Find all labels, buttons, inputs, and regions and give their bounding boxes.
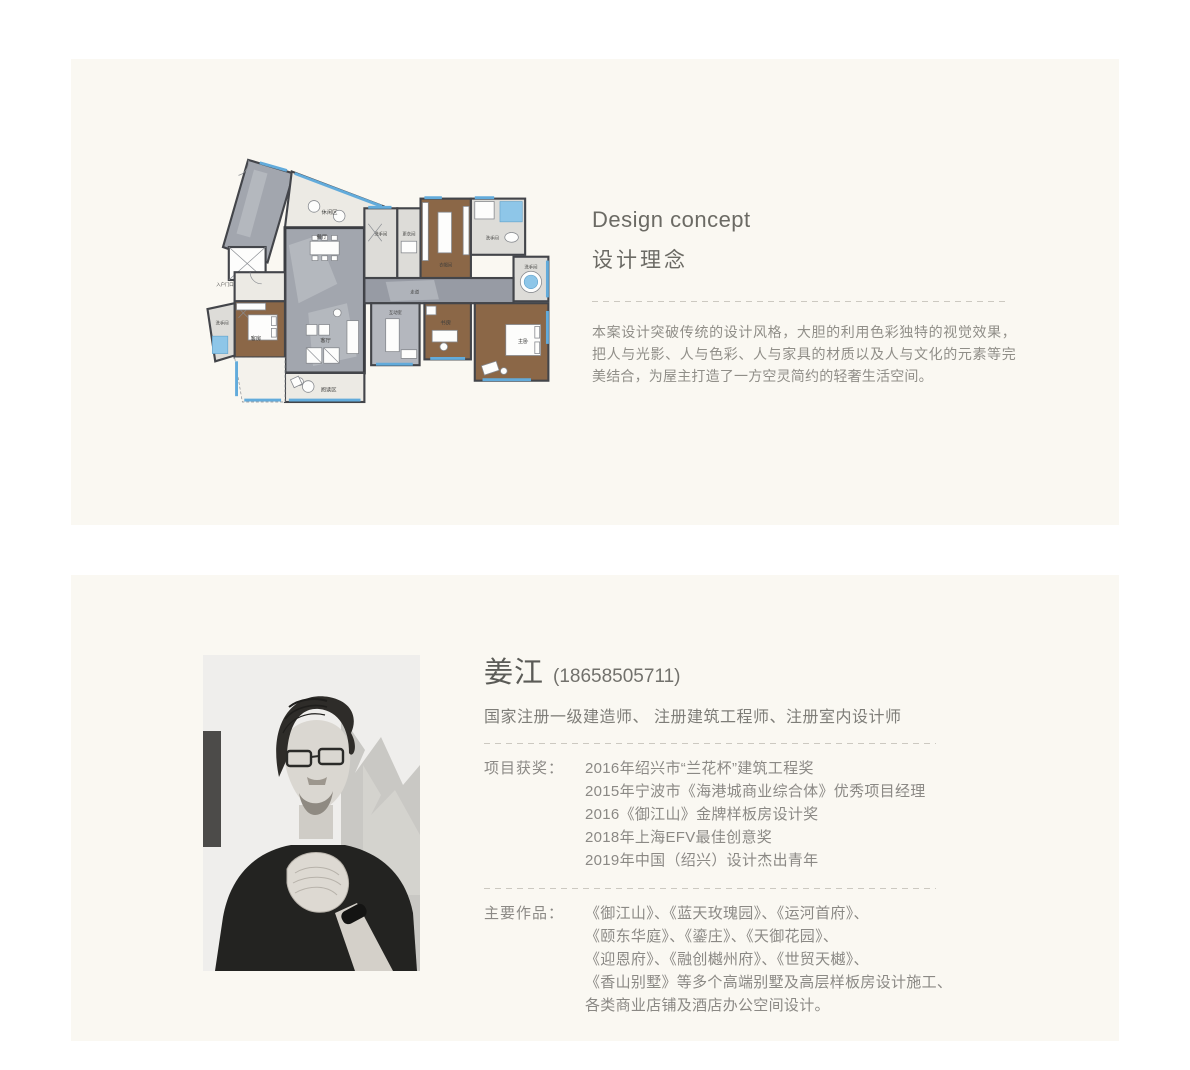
room-label: 互动室 <box>389 309 403 316</box>
room-label: 客房 <box>251 334 262 342</box>
dashed-divider <box>592 301 1006 302</box>
designer-credentials: 国家注册一级建造师、 注册建筑工程师、注册室内设计师 <box>484 703 954 727</box>
room-label: 书房 <box>440 319 451 327</box>
concept-description: 本案设计突破传统的设计风格，大胆的利用色彩独特的视觉效果，把人与光影、人与色彩、… <box>592 321 1016 387</box>
room-label: 餐厅 <box>316 232 327 240</box>
floorplan-image: 休闲区 餐厅 洗手间 更衣间 衣帽间 洗手间 洗手间 走道 入户门口 洗手间 客… <box>192 148 560 410</box>
work-item: 各类商业店铺及酒店办公空间设计。 <box>585 994 954 1017</box>
works-list: 《御江山》、《蓝天玫瑰园》、《运河首府》、 《颐东华庭》、《鎏庄》、《天御花园》… <box>585 902 954 1017</box>
works-label: 主要作品： <box>484 902 585 1017</box>
designer-portrait <box>203 655 420 971</box>
room-label: 洗手间 <box>216 320 229 327</box>
work-item: 《香山别墅》等多个高端别墅及高层样板房设计施工、 <box>585 971 954 994</box>
designer-phone: (18658505711) <box>553 666 680 688</box>
awards-section: 项目获奖： 2016年绍兴市“兰花杯”建筑工程奖 2015年宁波市《海港城商业综… <box>484 757 954 872</box>
work-item: 《迎恩府》、《融创樾州府》、《世贸天樾》、 <box>585 948 954 971</box>
work-item: 《颐东华庭》、《鎏庄》、《天御花园》、 <box>585 925 954 948</box>
awards-label: 项目获奖： <box>484 757 585 872</box>
dashed-divider <box>484 888 936 889</box>
award-item: 2016年绍兴市“兰花杯”建筑工程奖 <box>585 757 954 780</box>
room-label: 衣帽间 <box>439 261 452 268</box>
room-label: 入户门口 <box>216 281 233 288</box>
works-section: 主要作品： 《御江山》、《蓝天玫瑰园》、《运河首府》、 《颐东华庭》、《鎏庄》、… <box>484 902 954 1017</box>
award-item: 2015年宁波市《海港城商业综合体》优秀项目经理 <box>585 780 954 803</box>
room-label: 阅读区 <box>321 385 338 393</box>
profile-text-column: 姜江 (18658505711) 国家注册一级建造师、 注册建筑工程师、注册室内… <box>484 649 954 1017</box>
dashed-divider <box>484 743 936 744</box>
awards-list: 2016年绍兴市“兰花杯”建筑工程奖 2015年宁波市《海港城商业综合体》优秀项… <box>585 757 954 872</box>
room-label: 休闲区 <box>322 208 339 216</box>
room-label: 洗手间 <box>524 263 537 270</box>
award-item: 2016《御江山》金牌样板房设计奖 <box>585 803 954 826</box>
designer-name: 姜江 <box>484 649 544 691</box>
room-label: 走道 <box>410 289 419 296</box>
work-item: 《御江山》、《蓝天玫瑰园》、《运河首府》、 <box>585 902 954 925</box>
concept-text-column: Design concept 设计理念 本案设计突破传统的设计风格，大胆的利用色… <box>592 207 1016 401</box>
award-item: 2018年上海EFV最佳创意奖 <box>585 826 954 849</box>
room-label: 主卧 <box>518 337 529 345</box>
concept-title-zh: 设计理念 <box>592 244 1016 274</box>
room-label: 客厅 <box>320 336 331 344</box>
room-label: 更衣间 <box>402 230 415 237</box>
room-label: 洗手间 <box>486 234 499 241</box>
design-concept-panel: 休闲区 餐厅 洗手间 更衣间 衣帽间 洗手间 洗手间 走道 入户门口 洗手间 客… <box>71 59 1119 525</box>
room-label: 洗手间 <box>374 230 387 237</box>
concept-title-en: Design concept <box>592 207 1016 233</box>
award-item: 2019年中国（绍兴）设计杰出青年 <box>585 849 954 872</box>
designer-profile-panel: 姜江 (18658505711) 国家注册一级建造师、 注册建筑工程师、注册室内… <box>71 575 1119 1041</box>
designer-name-row: 姜江 (18658505711) <box>484 649 954 691</box>
